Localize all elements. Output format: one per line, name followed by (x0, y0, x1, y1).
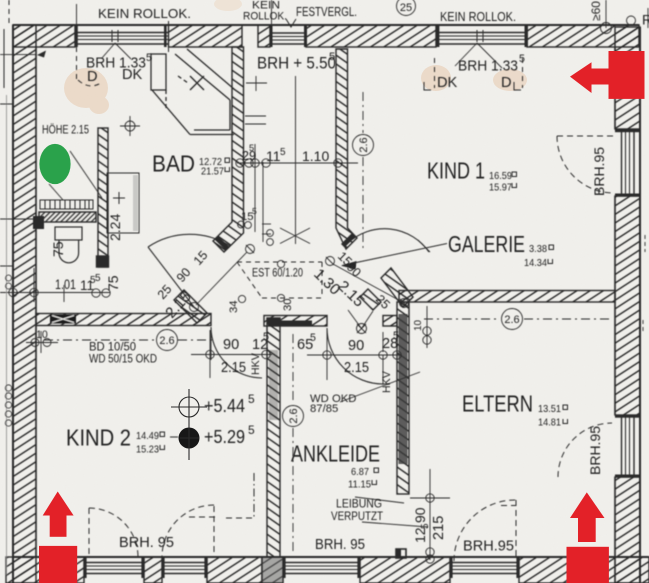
svg-text:ANKLEIDE: ANKLEIDE (291, 441, 380, 467)
svg-text:3.38: 3.38 (529, 243, 547, 255)
svg-text:BAD: BAD (152, 151, 195, 177)
svg-text:KIND 1: KIND 1 (427, 158, 485, 184)
svg-text:15.97: 15.97 (489, 182, 512, 194)
svg-text:5: 5 (263, 331, 269, 343)
svg-text:D: D (87, 69, 98, 85)
svg-text:ROLLOK.: ROLLOK. (243, 11, 287, 23)
svg-text:D: D (501, 75, 512, 91)
svg-text:90: 90 (348, 338, 364, 354)
svg-text:14.34: 14.34 (524, 257, 547, 269)
svg-text:5: 5 (95, 273, 101, 284)
svg-text:11.15: 11.15 (348, 479, 371, 491)
svg-text:5: 5 (248, 392, 255, 406)
svg-text:5: 5 (249, 143, 254, 153)
svg-text:5: 5 (146, 52, 152, 64)
svg-text:75: 75 (50, 241, 66, 257)
svg-text:5: 5 (329, 51, 335, 63)
svg-text:16.59: 16.59 (489, 170, 512, 182)
svg-text:2.6: 2.6 (288, 408, 300, 423)
svg-text:21.57: 21.57 (201, 166, 224, 178)
svg-text:BRH.95: BRH.95 (591, 147, 607, 196)
svg-text:5: 5 (393, 330, 399, 342)
svg-text:ELTERN: ELTERN (462, 391, 533, 417)
svg-text:LEIBUNG: LEIBUNG (336, 499, 382, 511)
svg-text:5: 5 (310, 332, 316, 344)
svg-text:HKV: HKV (250, 352, 262, 375)
svg-text:75: 75 (105, 275, 121, 291)
svg-text:WD 50/15 OKD: WD 50/15 OKD (89, 352, 157, 366)
svg-text:GALERIE: GALERIE (448, 231, 525, 257)
svg-text:HKV: HKV (381, 370, 393, 393)
svg-text:10: 10 (36, 329, 48, 341)
svg-text:VERPUTZT: VERPUTZT (331, 511, 383, 523)
svg-text:5: 5 (252, 206, 257, 216)
svg-text:1.01: 1.01 (55, 277, 76, 292)
svg-text:90: 90 (412, 507, 428, 523)
svg-text:HÖHE 2.15: HÖHE 2.15 (42, 125, 89, 137)
svg-text:10: 10 (413, 319, 424, 331)
svg-text:2.24: 2.24 (107, 214, 123, 241)
svg-text:+5.29: +5.29 (204, 427, 245, 447)
svg-text:14.49: 14.49 (136, 430, 159, 442)
svg-text:87/85: 87/85 (310, 403, 338, 415)
svg-text:BRH 1.33: BRH 1.33 (458, 58, 518, 75)
svg-text:FESTVERGL.: FESTVERGL. (296, 5, 357, 19)
svg-text:2.15: 2.15 (221, 359, 246, 376)
svg-text:5: 5 (280, 147, 286, 158)
svg-text:13.51: 13.51 (538, 403, 561, 415)
svg-text:215: 215 (431, 516, 447, 540)
svg-text:KIND 2: KIND 2 (66, 425, 131, 451)
svg-text:2.15: 2.15 (344, 359, 369, 376)
svg-text:2.6: 2.6 (504, 314, 519, 326)
svg-text:BRH.95: BRH.95 (463, 538, 514, 555)
svg-text:14.81: 14.81 (538, 417, 561, 429)
svg-text:BRH + 5.50: BRH + 5.50 (257, 55, 336, 73)
svg-text:2.6: 2.6 (358, 137, 370, 152)
svg-text:6.87: 6.87 (351, 466, 369, 478)
svg-text:R: R (642, 12, 649, 28)
svg-text:≥60: ≥60 (589, 1, 603, 21)
svg-text:BRH.95: BRH.95 (587, 426, 603, 475)
svg-text:EST 60/1.20: EST 60/1.20 (252, 268, 303, 280)
svg-text:DK: DK (437, 75, 458, 91)
svg-text:BRH. 95: BRH. 95 (315, 536, 365, 553)
svg-text:25: 25 (400, 2, 412, 14)
svg-text:KEIN ROLLOK.: KEIN ROLLOK. (98, 6, 191, 21)
svg-text:BRH. 95: BRH. 95 (119, 534, 174, 551)
svg-text:5: 5 (519, 53, 525, 65)
svg-text:2.6: 2.6 (159, 335, 174, 347)
svg-text:11: 11 (266, 148, 281, 164)
svg-text:15.23: 15.23 (136, 444, 159, 456)
svg-text:DK: DK (122, 67, 143, 83)
svg-text:34: 34 (228, 300, 240, 313)
svg-text:+5.44: +5.44 (204, 396, 245, 416)
svg-text:30: 30 (282, 298, 294, 311)
svg-text:5: 5 (248, 423, 255, 437)
svg-text:1.10: 1.10 (302, 148, 329, 164)
svg-text:90: 90 (223, 337, 239, 353)
svg-text:KEIN ROLLOK.: KEIN ROLLOK. (440, 9, 516, 24)
